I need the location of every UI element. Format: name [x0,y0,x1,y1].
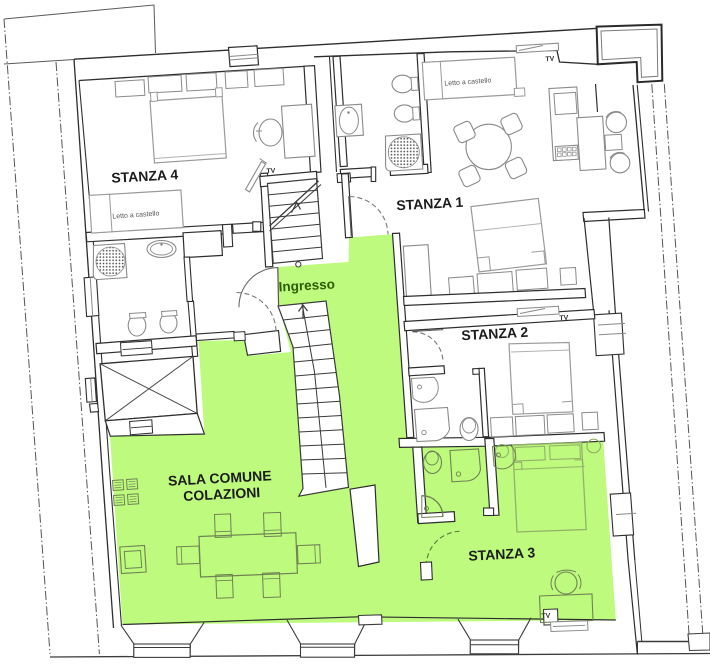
svg-text:TV: TV [266,168,276,175]
svg-text:TV: TV [541,613,551,620]
svg-text:TV: TV [559,315,569,322]
svg-text:Ingresso: Ingresso [278,277,335,295]
svg-text:TV: TV [545,56,555,63]
